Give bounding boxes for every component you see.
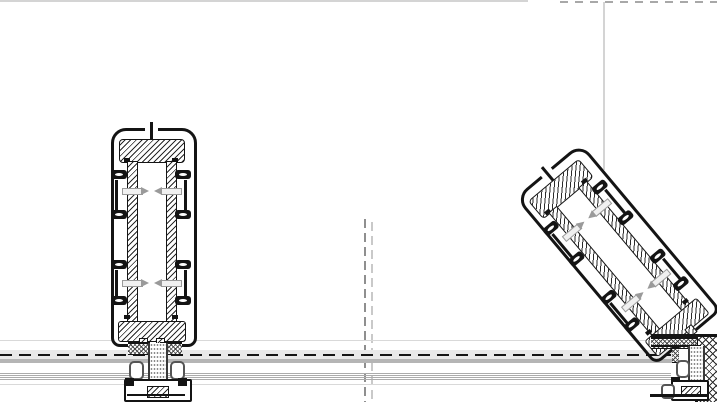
hinge-base-bracket [671, 380, 709, 401]
fixing-screw-tip [141, 187, 149, 195]
fixing-screw [122, 280, 143, 287]
web-joint-mark [172, 158, 178, 162]
glazing-clip-bar [175, 296, 191, 305]
clip-slot [115, 263, 123, 266]
fixing-screw [161, 280, 182, 287]
profile-web-left [127, 161, 138, 325]
clip-slot [654, 252, 662, 259]
fixing-screw-tip [154, 187, 162, 195]
glass-plane-reference-line [0, 0, 528, 2]
rail-profile-lines [0, 373, 671, 381]
glazing-clip-bar [175, 260, 191, 269]
clip-slot [179, 173, 187, 176]
rail-top-line [0, 340, 676, 341]
clip-slot [179, 299, 187, 302]
clip-slot [115, 213, 123, 216]
cad-drawing-canvas [0, 0, 717, 402]
stem-gasket [676, 360, 690, 378]
web-joint-mark [124, 158, 130, 162]
web-joint-mark [124, 315, 130, 319]
clip-slot [596, 183, 604, 190]
bracket-end-cap [125, 378, 134, 386]
fixing-screw-tip [141, 279, 149, 287]
glazing-clip-bar [111, 210, 127, 219]
clip-slot [115, 173, 123, 176]
cover-cap-profile-closed [111, 128, 193, 348]
clip-slot [115, 299, 123, 302]
clip-slot [622, 214, 630, 221]
clip-slot [605, 293, 613, 300]
bracket-inner-line [127, 394, 185, 396]
glazing-clip-bar [175, 170, 191, 179]
vertical-reference-line [603, 2, 605, 170]
clip-connector [184, 270, 187, 298]
hinge-base-bracket [124, 379, 192, 402]
glazing-clip-bar [111, 170, 127, 179]
fixing-stem [688, 346, 705, 384]
clip-slot [677, 280, 685, 287]
hinge-pressure-pad [128, 342, 150, 355]
rail-faint-line [0, 384, 671, 385]
fixing-screw-tip [154, 279, 162, 287]
bracket-end-cap [178, 378, 187, 386]
clip-slot [547, 225, 555, 232]
clip-connector [115, 270, 118, 298]
web-joint-mark [172, 315, 178, 319]
clip-slot [179, 263, 187, 266]
glazing-clip-bar [175, 210, 191, 219]
fixing-screw [161, 188, 182, 195]
fixing-screw [122, 188, 143, 195]
rail-band [0, 350, 676, 363]
glazing-clip-bar [111, 296, 127, 305]
glazing-clip-bar [111, 260, 127, 269]
bracket-insert [147, 386, 169, 398]
clip-slot [179, 213, 187, 216]
clip-connector [115, 180, 118, 212]
clip-connector [184, 180, 187, 212]
hinge-bottom-line [650, 394, 708, 397]
bottom-insulator-block [118, 321, 186, 342]
rail-centerline-dashed [0, 354, 671, 356]
top-dashed-reference-line [560, 1, 717, 3]
